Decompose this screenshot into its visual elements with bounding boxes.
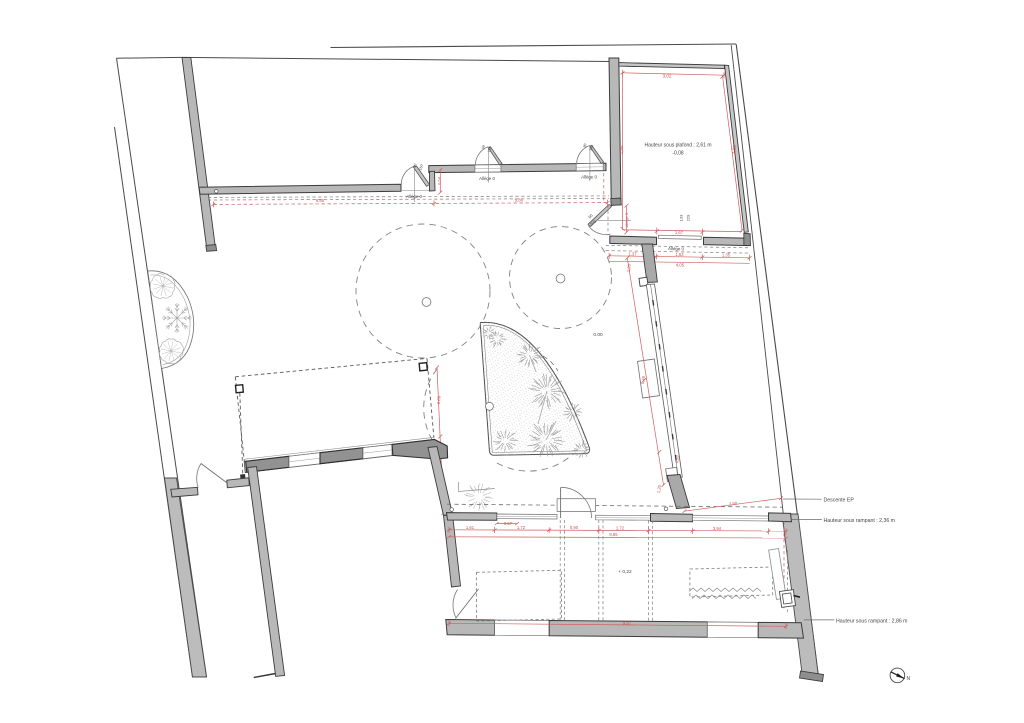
svg-text:0,57: 0,57 xyxy=(504,521,513,526)
svg-text:0.00: 0.00 xyxy=(593,332,603,338)
svg-text:1,35: 1,35 xyxy=(722,253,731,258)
svg-text:0,54: 0,54 xyxy=(437,176,442,185)
svg-text:3,94: 3,94 xyxy=(713,526,722,531)
svg-text:9,85: 9,85 xyxy=(609,532,618,537)
svg-text:229: 229 xyxy=(686,214,691,221)
svg-text:2,09: 2,09 xyxy=(436,395,442,404)
svg-text:Allège 0: Allège 0 xyxy=(581,175,597,180)
svg-text:1,67: 1,67 xyxy=(675,230,684,235)
svg-text:2,90: 2,90 xyxy=(729,500,738,506)
svg-text:Hauteur sous plafond : 2,61 m: Hauteur sous plafond : 2,61 m xyxy=(645,143,712,149)
svg-text:Descente EP: Descente EP xyxy=(824,498,855,504)
svg-text:2,85: 2,85 xyxy=(619,145,624,154)
svg-text:0,90: 0,90 xyxy=(570,525,579,530)
svg-text:1,53: 1,53 xyxy=(675,252,684,257)
svg-text:Allège 0: Allège 0 xyxy=(668,246,685,251)
svg-text:Allège 0: Allège 0 xyxy=(479,176,495,181)
svg-text:133: 133 xyxy=(679,214,684,221)
svg-text:-0,08: -0,08 xyxy=(672,151,684,157)
svg-text:6,85: 6,85 xyxy=(316,198,325,203)
svg-text:1,72: 1,72 xyxy=(616,526,625,531)
svg-text:4,05: 4,05 xyxy=(676,262,685,267)
svg-text:+ 0,22: + 0,22 xyxy=(618,569,632,575)
svg-text:Hauteur sous rampant : 2,36 m: Hauteur sous rampant : 2,36 m xyxy=(824,518,896,524)
svg-text:5,80: 5,80 xyxy=(515,197,524,202)
svg-text:1,37: 1,37 xyxy=(628,251,637,256)
svg-text:9,97: 9,97 xyxy=(623,621,632,626)
svg-text:Hauteur sous rampant : 2,86 m: Hauteur sous rampant : 2,86 m xyxy=(836,618,908,624)
svg-text:Allège 0: Allège 0 xyxy=(405,194,422,199)
svg-text:1,72: 1,72 xyxy=(517,525,526,530)
svg-text:N: N xyxy=(907,676,911,682)
svg-text:3,02: 3,02 xyxy=(662,73,671,78)
svg-text:1,61: 1,61 xyxy=(466,525,475,530)
